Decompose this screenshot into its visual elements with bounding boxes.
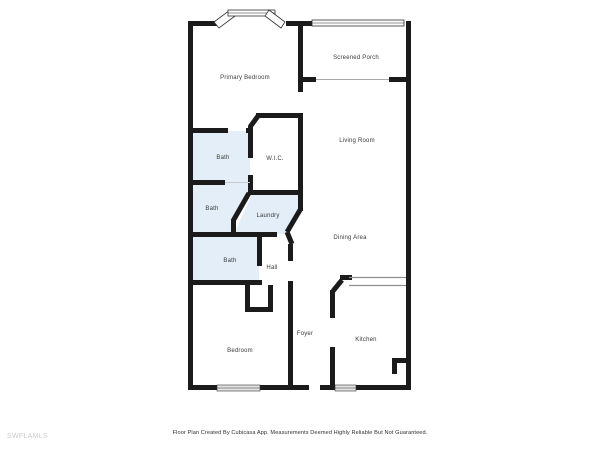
room-label-hall: Hall	[266, 265, 277, 271]
room-label-dining-area: Dining Area	[333, 235, 366, 241]
room-label-screened-porch: Screened Porch	[333, 55, 379, 61]
room-label-bath-upper: Bath	[216, 155, 229, 161]
room-label-bath-lower: Bath	[223, 258, 236, 264]
mls-watermark: SWFLAMLS	[7, 433, 48, 440]
room-label-foyer: Foyer	[297, 331, 313, 337]
floor-plan-drawing	[0, 0, 600, 450]
room-label-bedroom: Bedroom	[227, 348, 253, 354]
room-label-primary-bedroom: Primary Bedroom	[220, 75, 270, 81]
room-label-wic: W.I.C.	[266, 156, 284, 162]
room-label-laundry: Laundry	[256, 213, 279, 219]
floor-plan-page: Primary Bedroom Screened Porch Living Ro…	[0, 0, 600, 450]
disclaimer-text: Floor Plan Created By Cubicasa App. Meas…	[0, 430, 600, 436]
room-label-bath-middle: Bath	[205, 206, 218, 212]
room-label-living-room: Living Room	[339, 138, 375, 144]
room-label-kitchen: Kitchen	[355, 337, 376, 343]
